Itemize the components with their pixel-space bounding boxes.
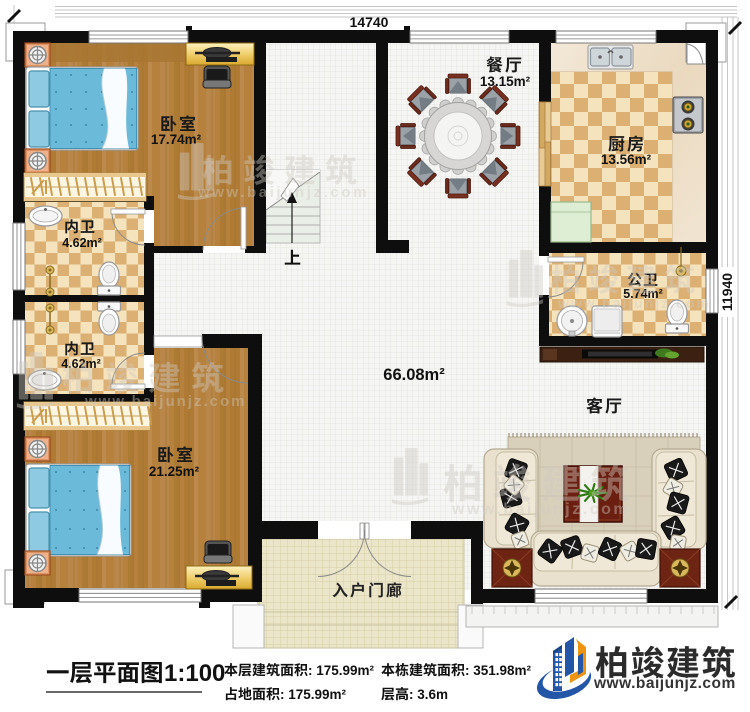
svg-text:: 175.99m²: : 175.99m² [308, 663, 375, 678]
svg-text:www.baijunjz.com: www.baijunjz.com [557, 295, 711, 311]
svg-text:13.56m²: 13.56m² [601, 152, 652, 167]
svg-text:www.baijunjz.com: www.baijunjz.com [197, 184, 369, 201]
svg-text:www.baijunjz.com: www.baijunjz.com [84, 393, 246, 410]
svg-text:66.08m²: 66.08m² [383, 366, 445, 384]
svg-text:: 175.99m²: : 175.99m² [280, 687, 347, 702]
svg-text:11940: 11940 [719, 273, 735, 311]
svg-text:: 351.98m²: : 351.98m² [465, 663, 532, 678]
svg-text:21.25m²: 21.25m² [149, 464, 200, 479]
svg-text:www.baijunjz.com: www.baijunjz.com [451, 501, 630, 518]
svg-text:www.baijunjz.com: www.baijunjz.com [593, 675, 736, 692]
svg-text:14740: 14740 [350, 14, 389, 30]
svg-text:13.15m²: 13.15m² [480, 74, 531, 89]
svg-text:: 3.6m: : 3.6m [409, 687, 448, 702]
svg-text:4.62m²: 4.62m² [62, 236, 102, 250]
svg-text:1:100: 1:100 [164, 660, 225, 687]
